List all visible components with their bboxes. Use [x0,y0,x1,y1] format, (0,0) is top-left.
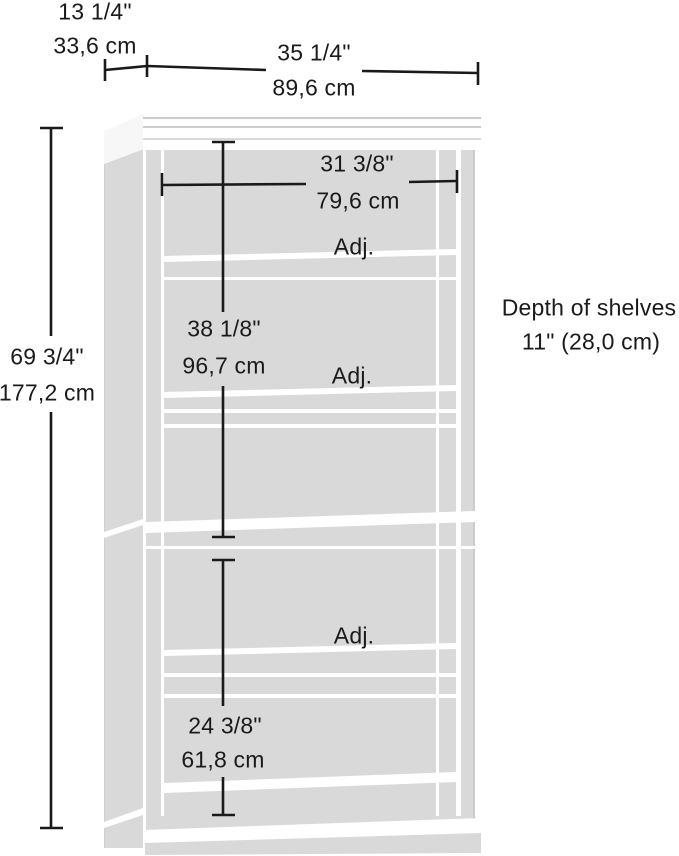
shelf-1-gap [164,277,456,280]
upper-height-label-cm: 96,7 cm [182,355,265,378]
lower-height-label-cm: 61,8 cm [181,749,264,772]
junction-gap [146,546,475,549]
shelf-3-gap-rail [164,694,456,698]
shelf-2-gap-front [164,409,456,413]
inner-width-label-inches: 31 3/8" [320,153,394,176]
adjustable-shelf-label-1: Adj. [334,236,374,259]
cornice [143,117,481,150]
shelf-3-gap-front [164,673,456,677]
upper-height-label-inches: 38 1/8" [187,318,261,341]
furniture-dimension-diagram: 13 1/4" 33,6 cm 35 1/4" 89,6 cm 31 3/8" … [0,0,679,856]
top-width-label-inches: 35 1/4" [277,42,351,65]
top-depth-label-cm: 33,6 cm [53,35,136,58]
depth-note-line-1: Depth of shelves [502,297,677,320]
total-height-label-inches: 69 3/4" [10,346,84,369]
back-corner-joint-right [436,150,439,816]
inner-width-label-cm: 79,6 cm [316,190,399,213]
total-height-label-cm: 177,2 cm [0,382,95,405]
bookcase-drawing [0,0,679,856]
top-depth-label-inches: 13 1/4" [58,1,132,24]
side-panel [104,120,143,848]
lower-height-label-inches: 24 3/8" [188,715,262,738]
adjustable-shelf-label-2: Adj. [332,365,372,388]
stile-joint-left [161,150,164,816]
adjustable-shelf-label-3: Adj. [334,625,374,648]
top-width-label-cm: 89,6 cm [272,77,355,100]
shelf-2-gap-rail [164,424,456,428]
depth-note-line-2: 11" (28,0 cm) [522,331,660,354]
stile-joint-right [456,150,461,816]
